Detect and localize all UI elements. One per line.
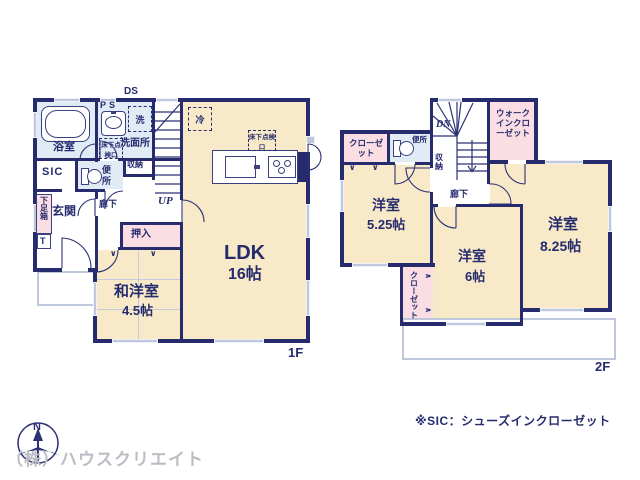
label-storage-2f: 収納 (435, 153, 445, 172)
window (540, 308, 584, 312)
label-storage-1f: 収納 (127, 160, 143, 169)
wall-segment (75, 158, 78, 192)
wall-segment (75, 189, 105, 192)
washbasin-tap (111, 111, 116, 114)
label-dn: DN (436, 119, 450, 131)
wall-segment (95, 98, 98, 162)
room-bedroom-c-2f (490, 164, 608, 204)
wall-segment (33, 158, 100, 161)
sic-note: ※SIC：シューズインクローゼット (415, 414, 611, 428)
compass-north-label: N (33, 421, 41, 433)
toilet-bowl-1f (87, 169, 102, 184)
wall-segment (400, 263, 403, 326)
wall-segment (120, 222, 123, 250)
window (352, 263, 388, 267)
wall-segment (33, 189, 62, 192)
porch-1f (37, 271, 97, 306)
burner (273, 160, 280, 167)
closet-chevron: ∨ (424, 273, 432, 280)
window (340, 180, 344, 212)
wall-segment (487, 160, 508, 164)
wall-segment (33, 268, 62, 272)
wall-segment (95, 216, 98, 272)
washbasin-bowl (105, 116, 122, 129)
washer-label: 洗 (135, 113, 144, 126)
window (54, 98, 80, 102)
label-ldk: LDK (224, 242, 265, 266)
underfloor-hatch-ldk: 床下点検口 (248, 130, 276, 151)
window (33, 112, 37, 138)
door-arc (78, 199, 95, 216)
window (438, 98, 462, 102)
fridge-box: 冷 (188, 107, 212, 131)
sink-tap (254, 165, 260, 169)
label-toilet-2f: 便所 (412, 136, 427, 145)
label-bedroom-b-size: 6帖 (465, 269, 485, 284)
window (93, 282, 97, 316)
label-wic: ウォークインクローゼット (494, 108, 532, 138)
door-hinge-block (306, 136, 315, 144)
underfloor-hatch-label: 床下点検口 (249, 131, 275, 151)
label-closet-a: クローゼット (348, 138, 384, 158)
washer-box: 洗 (128, 106, 152, 132)
stove-icon (268, 156, 296, 178)
stairs-1f (155, 104, 180, 193)
bathtub-icon (41, 106, 90, 142)
wall-segment (608, 160, 612, 312)
label-toilet-1f: 便所 (102, 165, 113, 186)
label-bathroom: 浴室 (53, 141, 75, 154)
label-hallway-1f: 廊下 (99, 199, 117, 210)
label-shoebox: 下足箱 (39, 196, 48, 220)
label-washroom: 洗面所 (120, 138, 150, 150)
room-bedroom-a-2f (344, 165, 430, 263)
window (306, 204, 310, 238)
washbasin-icon (101, 111, 126, 136)
burner (278, 167, 285, 174)
wall-segment (430, 98, 433, 168)
label-ldk-size: 16帖 (228, 266, 262, 285)
burner (284, 160, 291, 167)
label-up: UP (158, 195, 173, 208)
closet-chevron: ∨ (424, 307, 432, 314)
label-tatami-size: 4.5帖 (122, 303, 153, 318)
underfloor-hatch-label: 床下点検口 (100, 139, 122, 159)
window (306, 280, 310, 316)
wall-segment (387, 134, 390, 165)
door-arc (62, 238, 91, 268)
label-hallway-2f: 廊下 (450, 189, 468, 200)
label-closet-b: クローゼット (409, 271, 418, 319)
wall-segment (534, 98, 538, 164)
wall-segment (520, 204, 523, 325)
window (112, 339, 158, 343)
label-oshiire: 押入 (131, 229, 151, 241)
wall-segment (456, 204, 523, 207)
label-floor-1f: 1F (288, 345, 303, 360)
label-entrance: 玄関 (52, 204, 76, 218)
label-bedroom-a: 洋室 (372, 197, 400, 214)
wall-segment (180, 98, 183, 200)
label-bedroom-b: 洋室 (458, 248, 486, 265)
wall-segment (430, 204, 438, 207)
label-ps: PS (100, 100, 118, 111)
wall-segment (400, 322, 433, 326)
window (156, 98, 178, 102)
label-tatami: 和洋室 (114, 283, 159, 301)
floorplan-canvas: 洗 床下点検口 冷 床下点検口 DS PS 浴室 洗面所 収納 SIC 便所 玄… (0, 0, 640, 480)
window (608, 206, 612, 232)
wall-segment (180, 222, 183, 343)
wall-segment (123, 174, 155, 177)
kitchen-sink-icon (225, 156, 256, 178)
label-bedroom-a-size: 5.25帖 (367, 217, 405, 232)
tatami-grid-line (97, 279, 180, 280)
closet-chevron: ∨ (349, 164, 356, 172)
label-floor-2f: 2F (595, 359, 610, 374)
kitchen-counter (212, 150, 298, 184)
window (446, 322, 486, 326)
closet-chevron: ∨ (372, 164, 379, 172)
watermark: （株）ハウスクリエイト (6, 445, 204, 470)
label-shoebox-t: T (40, 236, 46, 247)
label-bedroom-c: 洋室 (548, 216, 578, 234)
closet-chevron: ∨ (110, 250, 117, 258)
wall-segment (95, 189, 98, 199)
label-bedroom-c-size: 8.25帖 (540, 238, 581, 255)
wall-segment (120, 222, 183, 225)
wall-segment (526, 160, 538, 164)
wall-segment (487, 164, 490, 184)
window (214, 339, 264, 343)
closet-chevron: ∨ (150, 250, 157, 258)
label-sic: SIC (42, 166, 63, 179)
label-ds: DS (124, 86, 138, 98)
window (545, 160, 583, 164)
bathtub-inner (45, 110, 86, 138)
fridge-label: 冷 (195, 113, 204, 126)
room-ldk-1f (183, 102, 306, 339)
wall-segment (152, 98, 155, 180)
wall-segment (306, 98, 310, 136)
